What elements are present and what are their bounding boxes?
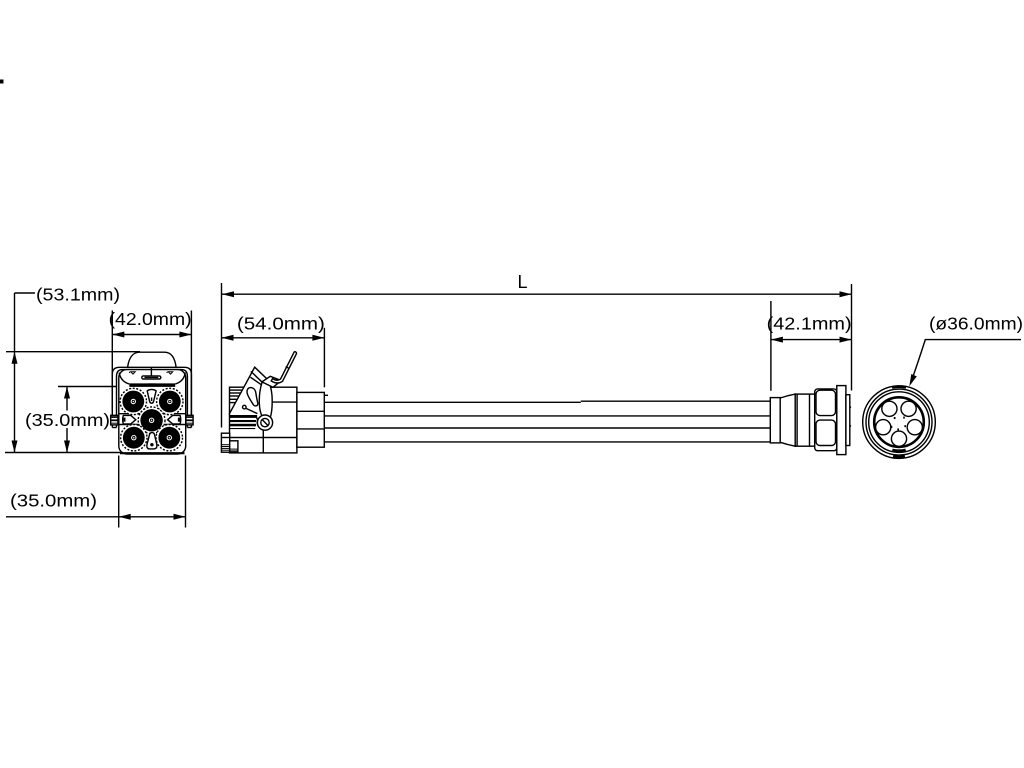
svg-text:(35.0mm): (35.0mm)	[25, 410, 110, 430]
svg-text:(53.1mm): (53.1mm)	[36, 284, 120, 304]
svg-text:L: L	[518, 272, 528, 292]
svg-text:(42.0mm): (42.0mm)	[109, 309, 192, 329]
svg-text:(54.0mm): (54.0mm)	[237, 313, 325, 333]
svg-text:(42.1mm): (42.1mm)	[767, 313, 852, 333]
svg-text:(35.0mm): (35.0mm)	[10, 491, 97, 511]
svg-text:(ø36.0mm): (ø36.0mm)	[929, 313, 1023, 333]
